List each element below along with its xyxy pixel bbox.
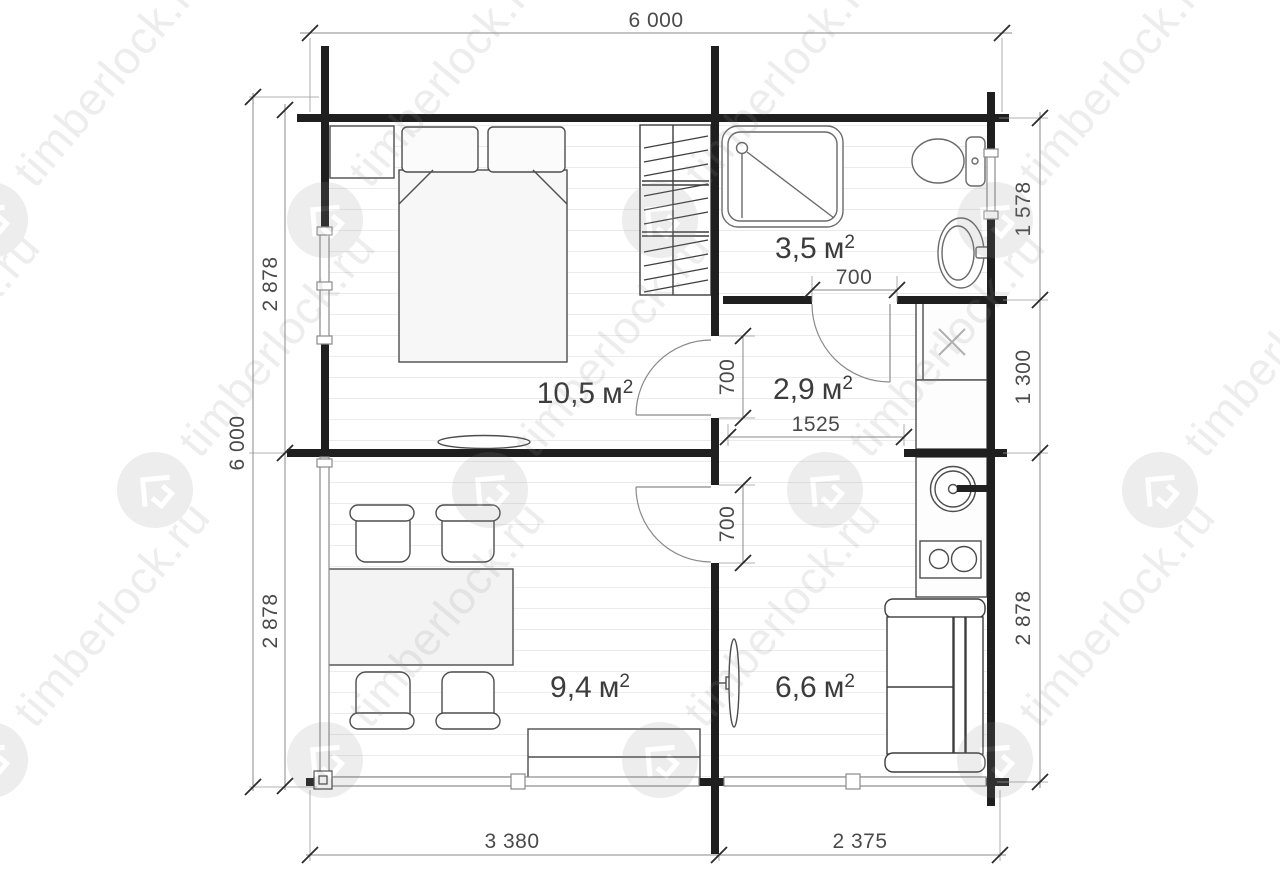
watermark-tile: timberlock.ru [0,214,60,543]
dim-right-mid: 1 300 [1012,349,1035,404]
log-end [711,46,719,114]
watermark-text: timberlock.ru [0,221,50,466]
watermark-tile: timberlock.ru [0,0,230,274]
bed-pillow [488,127,565,172]
watermark-text: timberlock.ru [3,491,220,736]
watermark-tile: timberlock.ru [0,0,60,4]
room-label-bathroom: 3,5м2 [775,232,855,265]
log-end [987,92,995,114]
dim-bedroom-door: 700 [716,359,739,396]
cooktop [920,541,981,578]
watermark-tile: timberlock.ru [0,484,230,813]
wall-middle [904,449,987,457]
sofa-back-cushion [954,617,965,754]
log-end [287,449,321,457]
watermark-text: timberlock.ru [1008,0,1225,196]
floor-plan-page: 6 000 6 000 2 878 2 878 1 578 1 300 2 87… [0,0,1280,893]
dim-bottom-left: 3 380 [484,830,539,853]
faucet [957,485,987,492]
dim-left-lower: 2 878 [259,593,282,648]
watermark-tile: timberlock.ru [1276,0,1280,274]
watermark-text: timberlock.ru [3,0,220,196]
timberlock-logo-icon [1276,706,1280,813]
watermark-text: timberlock.ru [1173,221,1280,466]
wall-bathroom [723,296,812,304]
dim-bathroom-door: 700 [836,266,873,289]
chair-back [436,713,500,729]
sofa-armrest [885,599,985,618]
dim-right-bottom: 2 878 [1012,590,1035,645]
toilet [912,137,985,186]
timberlock-logo-icon [1276,166,1280,273]
wall-east [987,114,995,152]
sofa-seat [887,617,953,754]
watermark-tile: timberlock.ru [1276,484,1280,813]
log-end [711,786,719,854]
watermark-tile: timberlock.ru [1106,214,1280,543]
wall-west [321,342,329,457]
dim-hall-opening: 1525 [792,413,841,436]
dim-lounge-door: 700 [716,506,739,543]
wall-south [699,778,724,786]
room-label-living-room: 9,4м2 [550,671,630,704]
dim-bottom-right: 2 375 [832,830,887,853]
dim-top: 6 000 [628,9,683,32]
floor-plan-drawing: 6 000 6 000 2 878 2 878 1 578 1 300 2 87… [0,0,1280,893]
log-end [321,46,329,114]
room-label-lounge: 6,6м2 [775,671,855,704]
room-label-hallway: 2,9м2 [773,373,853,406]
bed-mattress [399,170,567,362]
chair-back [350,505,414,521]
